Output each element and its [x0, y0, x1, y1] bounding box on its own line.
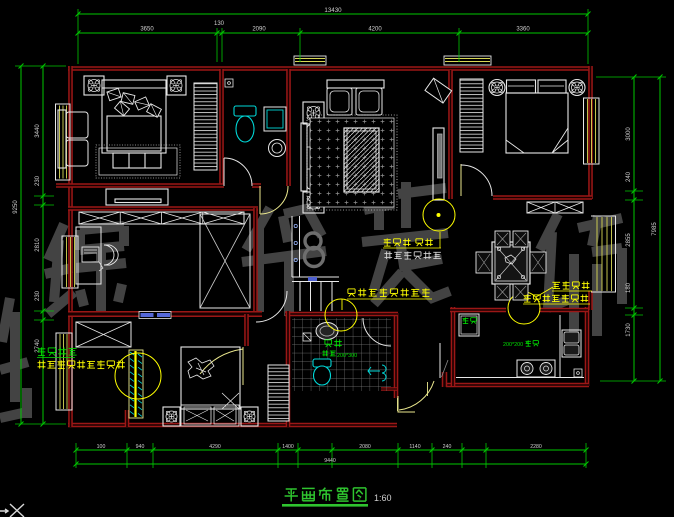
svg-text:240: 240 [626, 171, 632, 182]
svg-text:2855: 2855 [626, 233, 632, 247]
svg-text:2280: 2280 [530, 444, 542, 450]
svg-text:240: 240 [443, 444, 452, 450]
svg-text:230: 230 [35, 175, 41, 186]
svg-text:1400: 1400 [282, 444, 294, 450]
svg-text:9440: 9440 [324, 458, 336, 464]
svg-text:4290: 4290 [209, 444, 221, 450]
svg-text:1140: 1140 [409, 444, 420, 450]
svg-text:200*200: 200*200 [503, 342, 523, 348]
svg-text:2740: 2740 [35, 339, 41, 353]
svg-text:2810: 2810 [35, 238, 41, 252]
svg-text:7985: 7985 [652, 222, 658, 236]
svg-text:130: 130 [214, 21, 225, 27]
svg-text:3440: 3440 [35, 124, 41, 138]
svg-text:13430: 13430 [324, 7, 342, 14]
svg-text:100: 100 [97, 444, 106, 450]
svg-text:2080: 2080 [359, 444, 371, 450]
svg-text:9250: 9250 [13, 200, 19, 214]
svg-text:200*300: 200*300 [337, 353, 357, 359]
svg-text:4200: 4200 [368, 27, 382, 33]
svg-text:180: 180 [626, 282, 632, 293]
svg-text:940: 940 [136, 444, 145, 450]
svg-text:3000: 3000 [626, 127, 632, 141]
svg-text:230: 230 [35, 290, 41, 301]
svg-text:3650: 3650 [140, 27, 154, 33]
svg-text:3360: 3360 [516, 27, 530, 33]
svg-text:1:60: 1:60 [374, 493, 392, 503]
svg-text:1730: 1730 [626, 323, 632, 337]
svg-text:2090: 2090 [252, 27, 266, 33]
